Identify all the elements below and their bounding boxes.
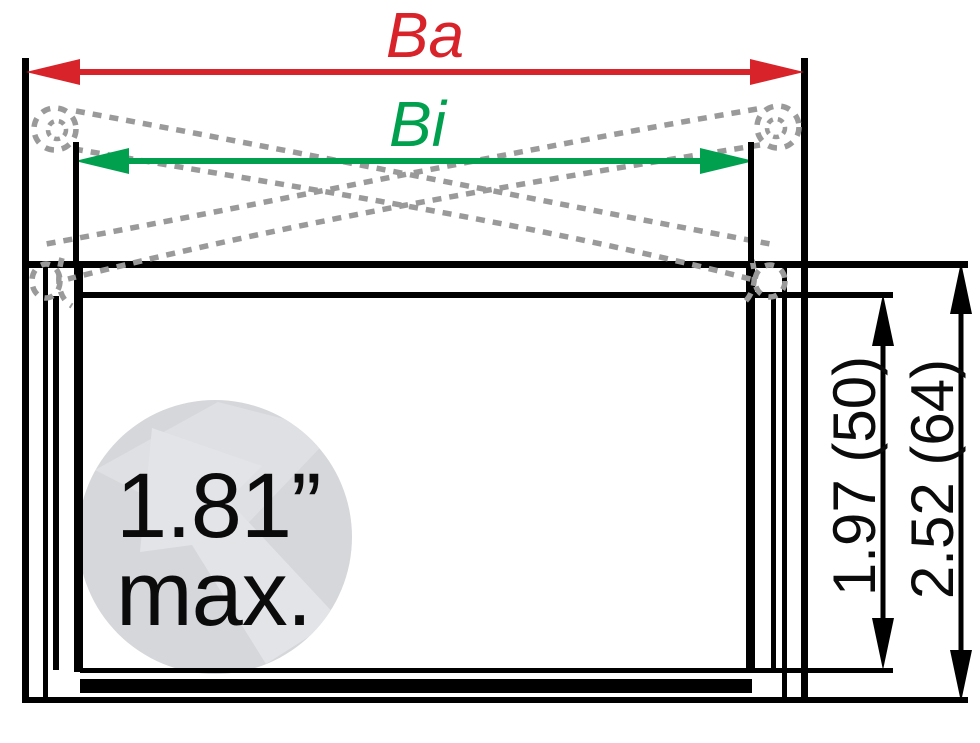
cable-right-loop-inner-icon	[767, 119, 785, 137]
inner-height-value: 1.97 (50)	[820, 276, 882, 676]
left-rail-outer	[43, 268, 48, 697]
bi-arrow-left-icon	[75, 148, 129, 174]
slide-rail-band	[80, 679, 752, 693]
cable-left-loop-icon	[34, 108, 76, 150]
ba-arrow-right-icon	[750, 59, 804, 85]
cabinet-top-line	[22, 261, 968, 268]
cable-right-lower-path	[68, 145, 760, 279]
cabinet-bottom-line	[22, 697, 968, 703]
cabinet-right-wall	[801, 58, 808, 703]
cable-left-loop-inner-icon	[48, 121, 66, 139]
outer-height-value: 2.52 (64)	[898, 279, 960, 679]
right-rail-inner	[771, 296, 776, 670]
ba-arrow-left-icon	[26, 59, 80, 85]
drawer-left-wall	[74, 263, 83, 672]
bi-inner-width-label: Bi	[330, 92, 505, 156]
bi-extension-left	[73, 142, 79, 263]
cable-right-loop-icon	[757, 106, 799, 148]
right-rail-outer	[782, 268, 787, 697]
drawer-right-wall	[746, 263, 755, 672]
left-rail-inner	[53, 296, 59, 670]
cabinet-left-wall	[22, 58, 29, 703]
max-depth-note: 1.81” max.	[116, 462, 321, 639]
bi-arrow-right-icon	[700, 148, 754, 174]
bi-extension-right	[748, 142, 754, 263]
ba-outer-width-label: Ba	[340, 3, 510, 67]
diagram-canvas: Ba Bi 1.81” max. 1.97 (50) 2.52 (64)	[0, 0, 980, 743]
